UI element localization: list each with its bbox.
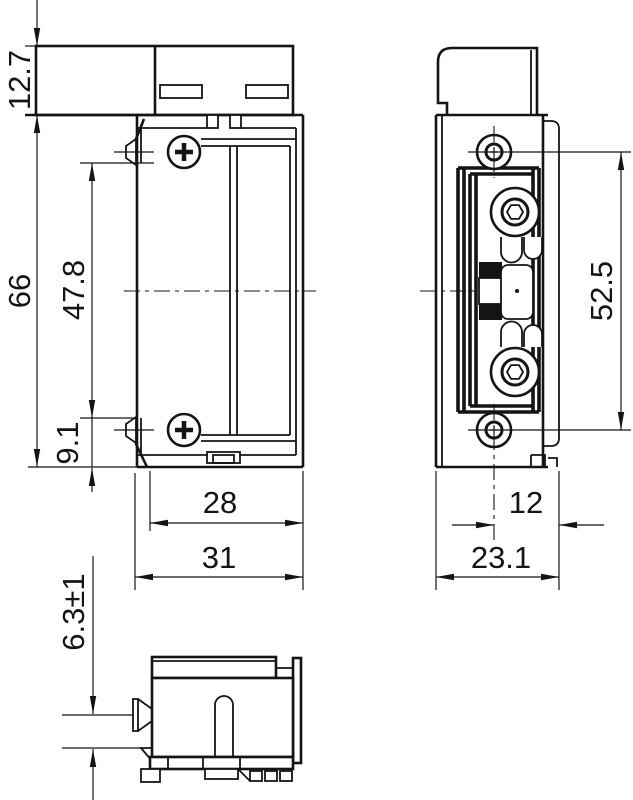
dimension-front-housing-height: 12.7: [2, 0, 37, 110]
bottom-view: [133, 657, 301, 782]
guide-fingers-top: [501, 237, 542, 263]
faceplate-lip-profile: [531, 121, 559, 467]
rail-notch-right: [230, 115, 241, 128]
keeper-cavity: [201, 139, 296, 441]
front-view: [25, 46, 316, 467]
strip-notch: [207, 452, 240, 463]
dimension-front-total-height: 66: [2, 115, 37, 467]
side-view: [420, 48, 559, 545]
screw-profile: [133, 699, 152, 731]
electric-strike-drawing: 12.7 66 47.8 9.1 28 31 52.5 12: [0, 0, 633, 800]
faceplate-band: [150, 757, 293, 769]
dim-label: 12.7: [2, 50, 37, 110]
bottom-strip: [137, 452, 296, 463]
bottom-body: [152, 678, 293, 757]
technical-drawing-page: 12.7 66 47.8 9.1 28 31 52.5 12: [0, 0, 633, 800]
latch-keeper: [479, 262, 533, 320]
faceplate-tab-bottom: [114, 417, 154, 467]
mounting-screw-bottom: [168, 414, 200, 446]
dim-label: 66: [2, 274, 37, 308]
rail-notch-left: [207, 115, 218, 128]
dim-label: 23.1: [471, 540, 531, 575]
dim-label: 47.8: [56, 260, 91, 320]
dim-label: 6.3±1: [56, 573, 91, 650]
dim-label: 12: [509, 485, 543, 520]
dim-label: 52.5: [584, 261, 619, 321]
guide-fingers-bottom: [501, 322, 542, 348]
faceplate-tab-top: [114, 119, 154, 165]
dimension-front-bottom-offset: 9.1: [28, 418, 137, 492]
dimension-bottom-screw-protrusion: 6.3±1: [56, 556, 141, 800]
dim-label: 9.1: [50, 421, 85, 464]
solenoid-housing: [36, 46, 293, 115]
faceplate-feet: [141, 769, 292, 782]
roller-bottom: [491, 348, 539, 396]
dim-label: 28: [203, 485, 237, 520]
mounting-hole-bottom: [477, 404, 511, 545]
roller-top: [491, 188, 539, 236]
solenoid-housing-side: [438, 48, 537, 115]
mounting-screw-top: [168, 136, 200, 168]
dim-label: 31: [202, 540, 236, 575]
